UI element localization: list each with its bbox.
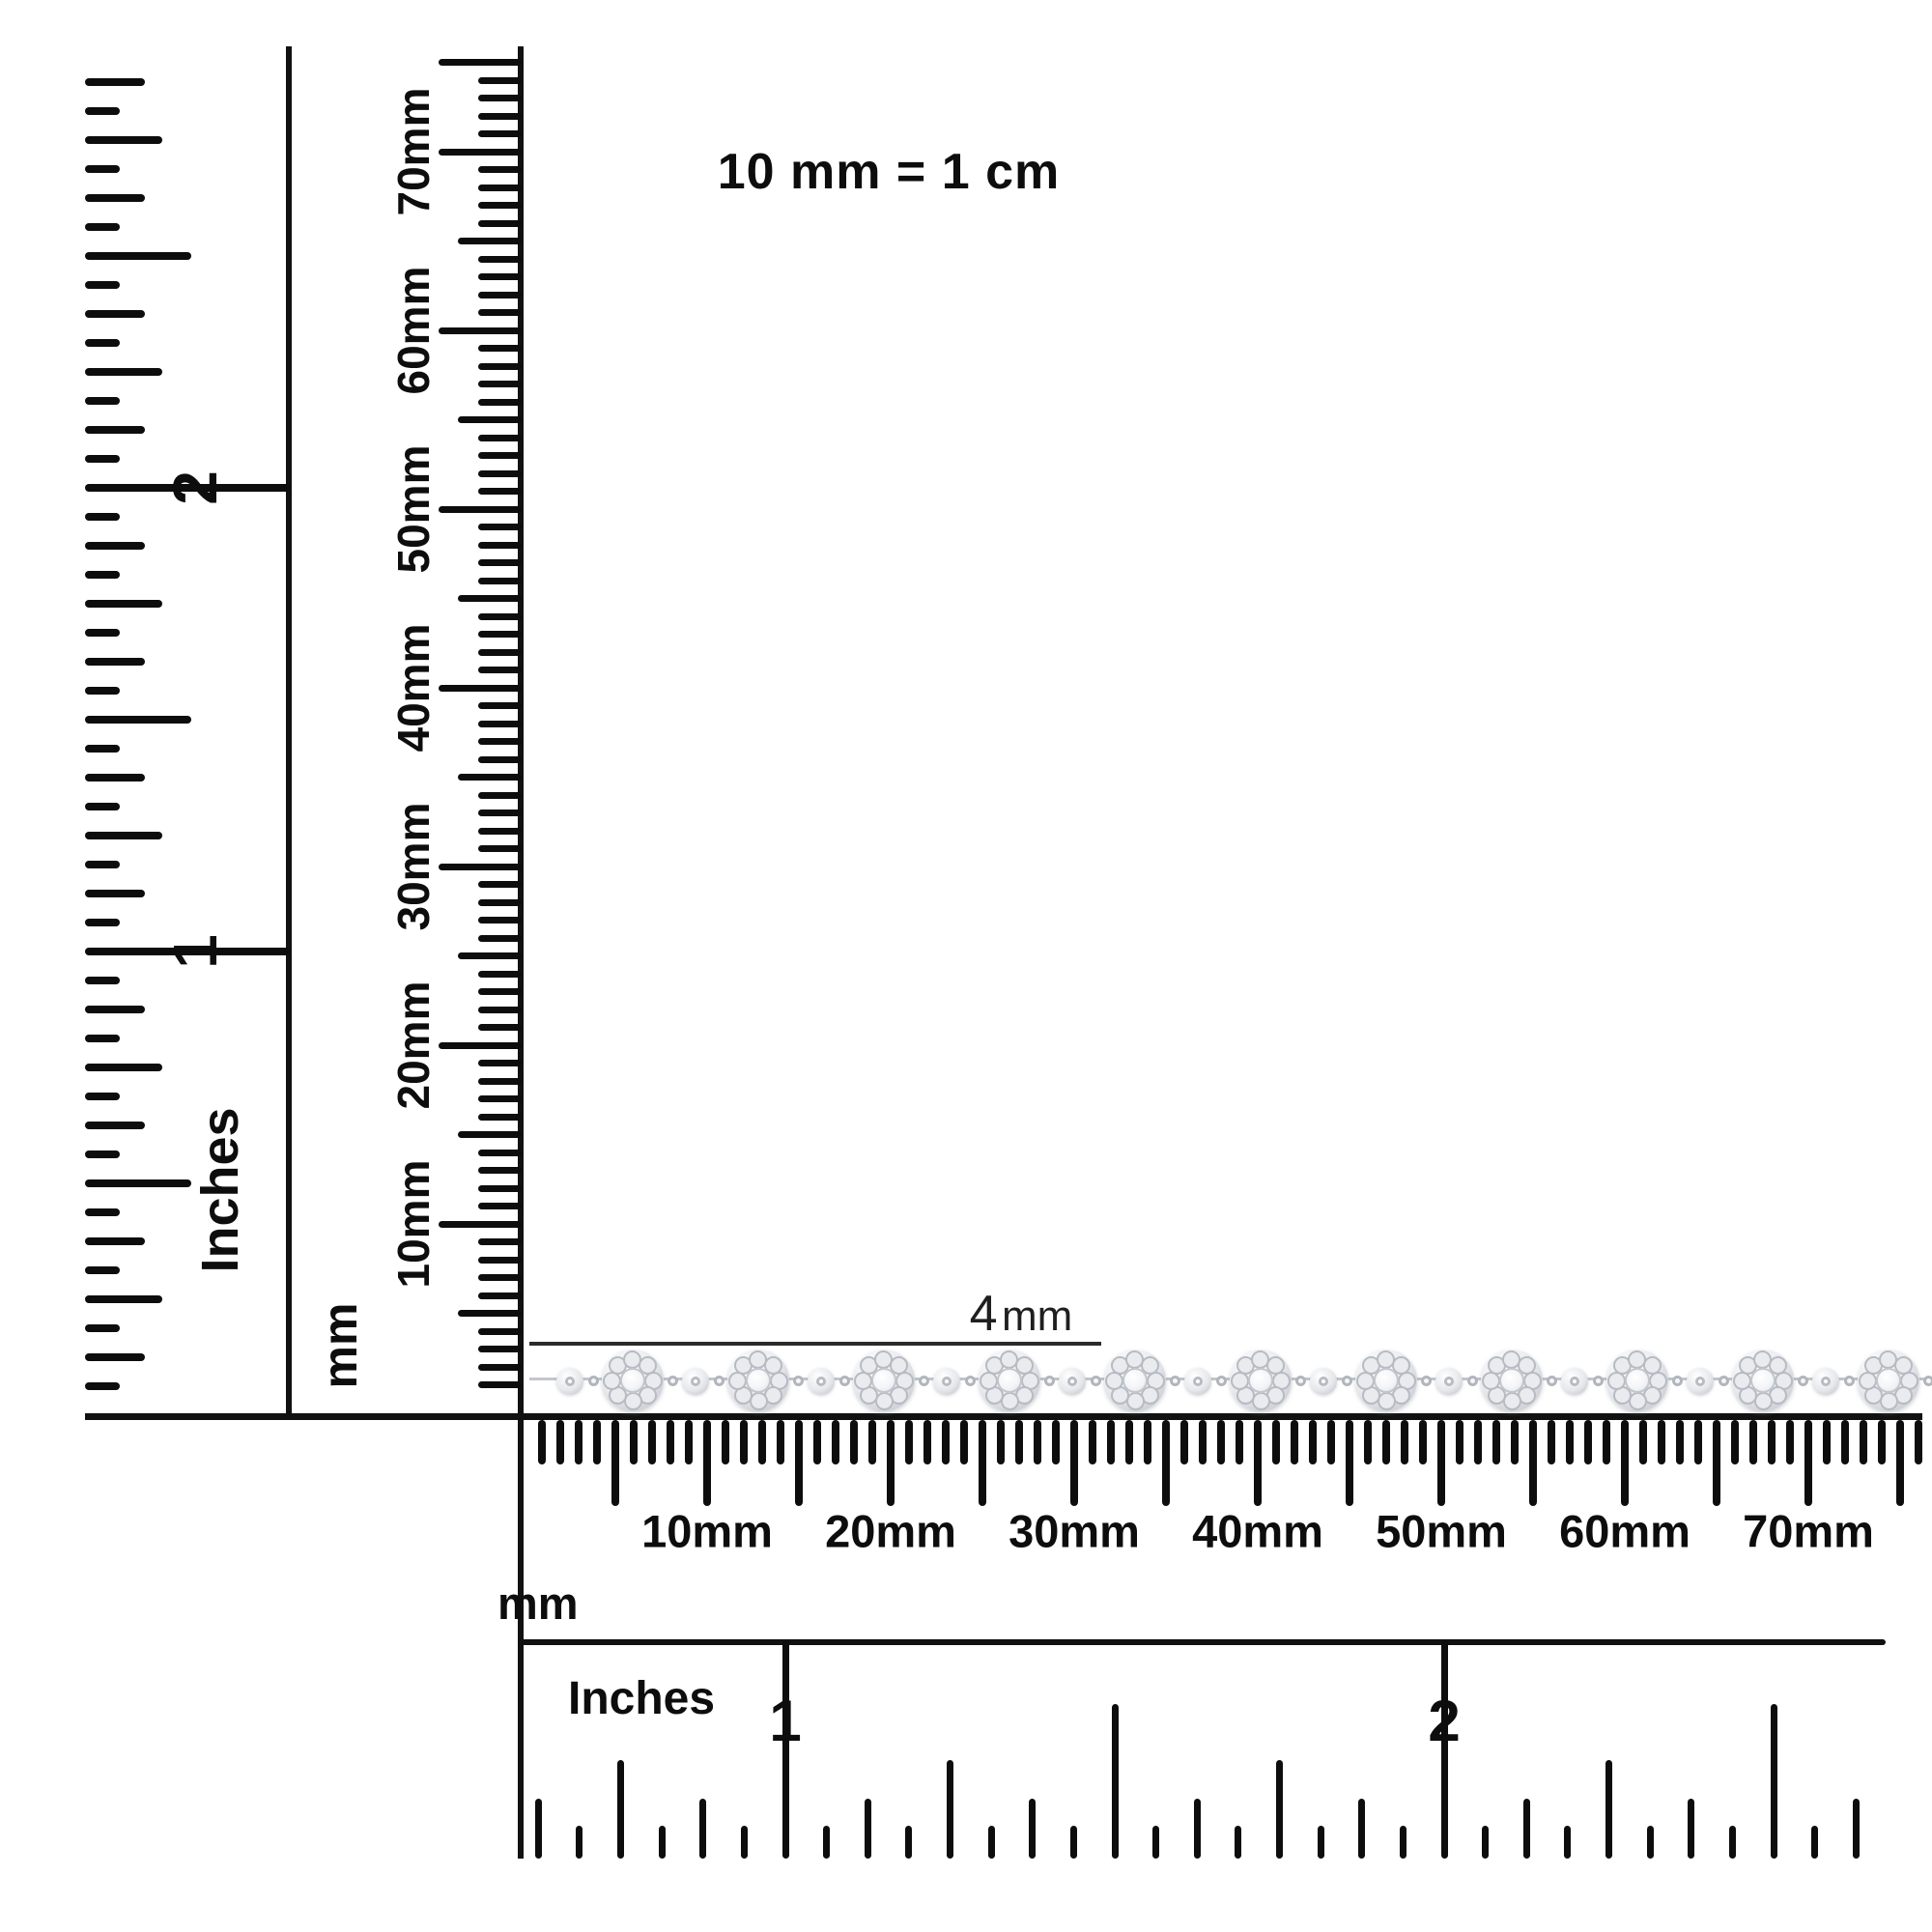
- inch-tick: [1400, 1826, 1406, 1859]
- inch-tick: [85, 426, 145, 434]
- inch-tick: [1318, 1826, 1324, 1859]
- mm-tick: [1327, 1420, 1335, 1464]
- inch-tick: [85, 310, 145, 318]
- mm-tick: [478, 435, 522, 441]
- mm-tick: [1052, 1420, 1060, 1464]
- mm-tick: [478, 399, 522, 406]
- cluster-center-stone: [871, 1368, 896, 1393]
- mm-tick: [1529, 1420, 1537, 1506]
- mm-tick: [630, 1420, 638, 1464]
- mm-tick: [685, 1420, 693, 1464]
- mm-tick: [478, 1203, 522, 1209]
- inch-tick: [85, 1295, 162, 1303]
- mm-tick: [703, 1420, 711, 1506]
- inch-tick: [1729, 1826, 1736, 1859]
- mm-tick: [478, 113, 522, 120]
- cluster-center-stone: [620, 1368, 645, 1393]
- measurement-value: 4: [970, 1286, 998, 1342]
- bracelet-bead: [556, 1368, 583, 1395]
- bracelet-cluster: [1606, 1350, 1668, 1411]
- mm-tick: [478, 721, 522, 727]
- bracelet-link-ring: [1170, 1376, 1180, 1386]
- inch-tick: [85, 107, 120, 115]
- inch-tick: [865, 1799, 871, 1859]
- mm-tick: [648, 1420, 656, 1464]
- mm-tick: [439, 59, 522, 66]
- cluster-center-stone: [1499, 1368, 1524, 1393]
- bracelet-link-ring: [1547, 1376, 1557, 1386]
- bead-hole: [816, 1377, 826, 1386]
- inch-tick: [1276, 1760, 1283, 1859]
- mm-tick-label: 30mm: [1009, 1509, 1140, 1554]
- mm-tick: [1217, 1420, 1225, 1464]
- mm-tick: [439, 1221, 522, 1228]
- inch-tick: [1358, 1799, 1365, 1859]
- mm-tick: [478, 220, 522, 227]
- inch-tick: [85, 861, 120, 868]
- inch-tick: [1853, 1799, 1860, 1859]
- mm-tick: [439, 327, 522, 334]
- mm-tick: [1694, 1420, 1702, 1464]
- mm-tick: [1584, 1420, 1592, 1464]
- inch-tick: [905, 1826, 912, 1859]
- mm-tick: [667, 1420, 674, 1464]
- mm-tick: [1125, 1420, 1133, 1464]
- inch-tick: [988, 1826, 995, 1859]
- inch-number: 2: [1428, 1692, 1460, 1750]
- bracelet-link-ring: [1719, 1376, 1729, 1386]
- mm-tick: [478, 1167, 522, 1174]
- inch-tick: [85, 1382, 120, 1390]
- mm-tick: [439, 864, 522, 870]
- ruler-spine: [286, 46, 292, 1413]
- mm-tick: [611, 1420, 619, 1506]
- mm-tick: [1236, 1420, 1243, 1464]
- inch-tick: [1811, 1826, 1818, 1859]
- mm-tick: [478, 1346, 522, 1352]
- inch-tick: [617, 1760, 624, 1859]
- inch-tick: [85, 774, 145, 781]
- bracelet-cluster: [1104, 1350, 1166, 1411]
- mm-tick: [478, 1185, 522, 1192]
- inch-tick: [85, 1237, 145, 1245]
- mm-tick: [478, 756, 522, 763]
- inch-tick: [1605, 1760, 1612, 1859]
- inch-tick: [659, 1826, 666, 1859]
- bracelet-link-ring: [1467, 1376, 1478, 1386]
- bead-hole: [1444, 1377, 1454, 1386]
- mm-tick: [1566, 1420, 1574, 1464]
- mm-tick-label: 40mm: [391, 624, 436, 753]
- ruler-baseline: [85, 1413, 1922, 1420]
- mm-tick: [478, 1293, 522, 1299]
- inch-tick: [85, 194, 145, 202]
- inch-tick: [85, 1151, 120, 1158]
- bracelet-link-ring: [839, 1376, 850, 1386]
- inch-tick: [1647, 1826, 1654, 1859]
- mm-tick: [979, 1420, 986, 1506]
- inch-tick: [85, 252, 191, 260]
- bead-hole: [942, 1377, 952, 1386]
- inch-tick: [85, 136, 162, 144]
- inch-tick: [85, 629, 120, 637]
- mm-tick: [478, 256, 522, 263]
- inch-tick: [85, 542, 145, 550]
- inch-tick: [535, 1799, 542, 1859]
- bracelet-cluster: [1732, 1350, 1794, 1411]
- inch-tick: [85, 832, 162, 839]
- inch-tick: [1152, 1826, 1159, 1859]
- inch-tick: [85, 455, 120, 463]
- inch-tick: [1688, 1799, 1694, 1859]
- mm-tick: [832, 1420, 839, 1464]
- bracelet-bead: [933, 1368, 960, 1395]
- mm-tick: [478, 971, 522, 978]
- bead-hole: [1067, 1377, 1077, 1386]
- mm-tick-label: 10mm: [641, 1509, 773, 1554]
- mm-tick: [478, 1364, 522, 1371]
- mm-tick: [1272, 1420, 1280, 1464]
- mm-tick-label: 60mm: [391, 267, 436, 395]
- mm-tick: [478, 1328, 522, 1335]
- mm-tick: [1676, 1420, 1684, 1464]
- cluster-center-stone: [1122, 1368, 1148, 1393]
- mm-tick: [478, 363, 522, 370]
- bead-hole: [1193, 1377, 1203, 1386]
- mm-tick: [740, 1420, 748, 1464]
- bracelet-link-ring: [919, 1376, 929, 1386]
- mm-tick: [1841, 1420, 1849, 1464]
- ruler-topline: [519, 1639, 1886, 1645]
- mm-tick: [1474, 1420, 1482, 1464]
- mm-tick: [478, 381, 522, 387]
- mm-tick: [478, 559, 522, 566]
- bracelet-link-ring: [965, 1376, 976, 1386]
- scale-note: 10 mm = 1 cm: [718, 147, 1061, 197]
- inch-tick: [85, 890, 145, 897]
- mm-tick: [458, 416, 522, 423]
- mm-tick: [478, 95, 522, 101]
- inch-tick: [85, 745, 120, 753]
- bead-hole: [1695, 1377, 1705, 1386]
- mm-tick: [1731, 1420, 1739, 1464]
- inch-tick: [85, 1208, 120, 1216]
- mm-tick: [1291, 1420, 1298, 1464]
- mm-tick: [1786, 1420, 1794, 1464]
- mm-tick: [478, 792, 522, 799]
- mm-tick: [478, 1007, 522, 1013]
- mm-tick: [478, 988, 522, 995]
- mm-tick-label: 30mm: [391, 803, 436, 931]
- mm-tick: [478, 667, 522, 673]
- mm-tick: [478, 452, 522, 459]
- mm-tick-label: 40mm: [1192, 1509, 1323, 1554]
- inch-number: 2: [164, 470, 226, 505]
- mm-tick-label: 20mm: [391, 981, 436, 1110]
- mm-tick: [1015, 1420, 1023, 1464]
- mm-tick: [1382, 1420, 1390, 1464]
- bracelet-cluster: [853, 1350, 915, 1411]
- bracelet-link-ring: [1923, 1376, 1932, 1386]
- mm-tick: [1162, 1420, 1170, 1506]
- bead-hole: [691, 1377, 700, 1386]
- cluster-center-stone: [1625, 1368, 1650, 1393]
- bracelet-link-ring: [793, 1376, 804, 1386]
- mm-tick: [1915, 1420, 1922, 1464]
- mm-tick: [887, 1420, 895, 1506]
- mm-tick: [478, 578, 522, 584]
- cluster-center-stone: [1248, 1368, 1273, 1393]
- mm-tick: [478, 1024, 522, 1031]
- mm-tick: [478, 917, 522, 923]
- mm-tick: [458, 1310, 522, 1317]
- bottom-inches-unit-label: Inches: [568, 1676, 715, 1722]
- inch-tick: [85, 1324, 120, 1332]
- mm-tick: [722, 1420, 729, 1464]
- inch-number: 1: [164, 934, 226, 969]
- bead-hole: [1821, 1377, 1831, 1386]
- mm-tick: [478, 292, 522, 298]
- mm-tick: [478, 185, 522, 191]
- bead-hole: [1319, 1377, 1328, 1386]
- inch-tick: [1564, 1826, 1571, 1859]
- mm-tick: [478, 130, 522, 137]
- mm-tick: [997, 1420, 1005, 1464]
- mm-tick: [478, 810, 522, 816]
- mm-tick-label: 50mm: [1376, 1509, 1507, 1554]
- mm-tick: [478, 1114, 522, 1121]
- mm-tick: [439, 685, 522, 692]
- mm-tick: [1749, 1420, 1757, 1464]
- mm-tick: [439, 149, 522, 156]
- mm-tick: [1401, 1420, 1408, 1464]
- mm-tick: [478, 702, 522, 709]
- bracelet-bead: [1812, 1368, 1839, 1395]
- mm-tick: [1768, 1420, 1776, 1464]
- bracelet-bead: [1561, 1368, 1588, 1395]
- mm-tick: [478, 77, 522, 84]
- mm-tick: [478, 1274, 522, 1281]
- mm-tick: [813, 1420, 821, 1464]
- mm-tick: [478, 524, 522, 530]
- mm-tick: [478, 1238, 522, 1245]
- mm-tick: [1804, 1420, 1812, 1506]
- inch-tick: [741, 1826, 748, 1859]
- measurement-photo: 10 mm = 1 cm Inches 12 mm 10mm20mm30mm40…: [0, 0, 1932, 1932]
- bracelet-cluster: [1481, 1350, 1543, 1411]
- inch-tick: [1029, 1799, 1036, 1859]
- mm-tick: [1548, 1420, 1555, 1464]
- mm-tick-label: 20mm: [825, 1509, 956, 1554]
- mm-tick: [478, 1060, 522, 1066]
- bracelet-bead: [808, 1368, 835, 1395]
- mm-tick: [478, 899, 522, 906]
- mm-tick: [1823, 1420, 1831, 1464]
- inch-tick: [85, 368, 162, 376]
- mm-tick-label: 60mm: [1559, 1509, 1690, 1554]
- inch-tick: [85, 281, 120, 289]
- inch-tick: [85, 78, 145, 86]
- mm-tick: [478, 542, 522, 549]
- mm-tick: [1309, 1420, 1317, 1464]
- inch-tick: [85, 223, 120, 231]
- mm-tick: [1511, 1420, 1519, 1464]
- mm-tick: [478, 1095, 522, 1102]
- inch-tick: [1194, 1799, 1201, 1859]
- bracelet-cluster: [1858, 1350, 1919, 1411]
- mm-tick: [777, 1420, 784, 1464]
- inch-tick: [85, 339, 120, 347]
- inch-tick: [85, 1093, 120, 1100]
- mm-tick: [478, 309, 522, 316]
- inch-tick: [1771, 1704, 1777, 1859]
- mm-tick: [575, 1420, 582, 1464]
- bracelet-link-ring: [1421, 1376, 1432, 1386]
- vertical-mm-unit-label: mm: [316, 1303, 364, 1389]
- mm-tick: [1456, 1420, 1463, 1464]
- mm-tick: [593, 1420, 601, 1464]
- cluster-center-stone: [1374, 1368, 1399, 1393]
- inch-tick: [85, 1064, 162, 1071]
- bracelet-link-ring: [588, 1376, 599, 1386]
- inch-tick: [85, 513, 120, 521]
- inch-number: 1: [769, 1692, 801, 1750]
- inch-tick: [1482, 1826, 1489, 1859]
- bracelet-link-ring: [1044, 1376, 1055, 1386]
- mm-tick: [478, 613, 522, 620]
- mm-tick: [458, 238, 522, 244]
- inch-tick: [1235, 1826, 1241, 1859]
- mm-tick: [458, 595, 522, 602]
- bracelet-link-ring: [668, 1376, 678, 1386]
- inch-tick: [1070, 1826, 1077, 1859]
- bottom-mm-unit-label: mm: [497, 1580, 579, 1626]
- mm-tick: [478, 488, 522, 495]
- mm-tick: [556, 1420, 564, 1464]
- bracelet-link-ring: [1593, 1376, 1604, 1386]
- mm-tick: [538, 1420, 546, 1464]
- mm-tick: [1346, 1420, 1353, 1506]
- mm-tick: [905, 1420, 913, 1464]
- mm-tick: [478, 1078, 522, 1085]
- bracelet-link-ring: [1295, 1376, 1306, 1386]
- mm-tick: [478, 631, 522, 638]
- mm-tick-label: 70mm: [391, 88, 436, 216]
- mm-tick: [458, 1131, 522, 1138]
- mm-tick: [795, 1420, 803, 1506]
- mm-tick: [478, 935, 522, 942]
- inch-tick: [699, 1799, 706, 1859]
- mm-tick: [478, 202, 522, 209]
- inch-tick: [1112, 1704, 1119, 1859]
- inch-tick: [85, 1353, 145, 1361]
- mm-tick: [478, 345, 522, 352]
- bracelet-link-ring: [1216, 1376, 1227, 1386]
- mm-tick: [1713, 1420, 1720, 1506]
- inch-tick: [85, 716, 191, 724]
- mm-tick: [1089, 1420, 1096, 1464]
- mm-tick: [1603, 1420, 1610, 1464]
- mm-tick: [1364, 1420, 1372, 1464]
- mm-tick: [1144, 1420, 1151, 1464]
- bracelet-bead: [1687, 1368, 1714, 1395]
- mm-tick: [1492, 1420, 1500, 1464]
- mm-tick: [868, 1420, 876, 1464]
- cluster-center-stone: [1750, 1368, 1776, 1393]
- inch-tick: [85, 1006, 145, 1013]
- bracelet-link-ring: [1672, 1376, 1683, 1386]
- bracelet-bead: [1435, 1368, 1463, 1395]
- mm-tick: [1658, 1420, 1665, 1464]
- mm-tick: [478, 649, 522, 656]
- inch-tick: [85, 165, 120, 173]
- mm-tick: [942, 1420, 950, 1464]
- mm-tick: [478, 881, 522, 888]
- inch-tick: [85, 977, 120, 984]
- mm-tick: [478, 1381, 522, 1388]
- bracelet-bead: [1310, 1368, 1337, 1395]
- mm-tick: [1878, 1420, 1886, 1464]
- bead-hole: [565, 1377, 575, 1386]
- bracelet-cluster: [602, 1350, 664, 1411]
- inch-tick: [1523, 1799, 1530, 1859]
- bracelet-link-ring: [1342, 1376, 1352, 1386]
- mm-tick: [478, 273, 522, 280]
- mm-tick: [478, 828, 522, 835]
- inch-tick: [85, 919, 120, 926]
- inch-tick: [85, 658, 145, 666]
- mm-tick: [1437, 1420, 1445, 1506]
- bead-hole: [1570, 1377, 1579, 1386]
- mm-tick: [1860, 1420, 1867, 1464]
- bracelet-cluster: [1230, 1350, 1292, 1411]
- bracelet-cluster: [979, 1350, 1040, 1411]
- mm-tick: [478, 470, 522, 477]
- bracelet-link-ring: [714, 1376, 724, 1386]
- mm-tick-label: 70mm: [1743, 1509, 1874, 1554]
- mm-tick: [1199, 1420, 1207, 1464]
- mm-tick: [1419, 1420, 1427, 1464]
- mm-tick: [1107, 1420, 1115, 1464]
- mm-tick: [439, 1042, 522, 1049]
- measurement-unit: mm: [1002, 1293, 1072, 1340]
- mm-tick: [758, 1420, 766, 1464]
- inch-tick: [947, 1760, 953, 1859]
- bracelet-cluster: [727, 1350, 789, 1411]
- inch-tick: [576, 1826, 582, 1859]
- measurement-label: 4 mm: [970, 1289, 1073, 1339]
- mm-tick: [478, 1150, 522, 1156]
- inch-tick: [85, 687, 120, 695]
- mm-tick: [439, 506, 522, 513]
- inch-tick: [85, 803, 120, 810]
- mm-tick: [1639, 1420, 1647, 1464]
- inch-tick: [85, 1122, 145, 1129]
- mm-tick-label: 10mm: [391, 1160, 436, 1289]
- inch-tick: [85, 397, 120, 405]
- measurement-line: [529, 1342, 1101, 1346]
- mm-tick: [1621, 1420, 1629, 1506]
- mm-tick-label: 50mm: [391, 445, 436, 574]
- bracelet-cluster: [1355, 1350, 1417, 1411]
- cluster-center-stone: [997, 1368, 1022, 1393]
- mm-tick: [1034, 1420, 1041, 1464]
- bracelet-bead: [1059, 1368, 1086, 1395]
- mm-tick: [1180, 1420, 1188, 1464]
- bracelet-bead: [682, 1368, 709, 1395]
- bracelet-link-ring: [1844, 1376, 1855, 1386]
- mm-tick: [478, 1257, 522, 1264]
